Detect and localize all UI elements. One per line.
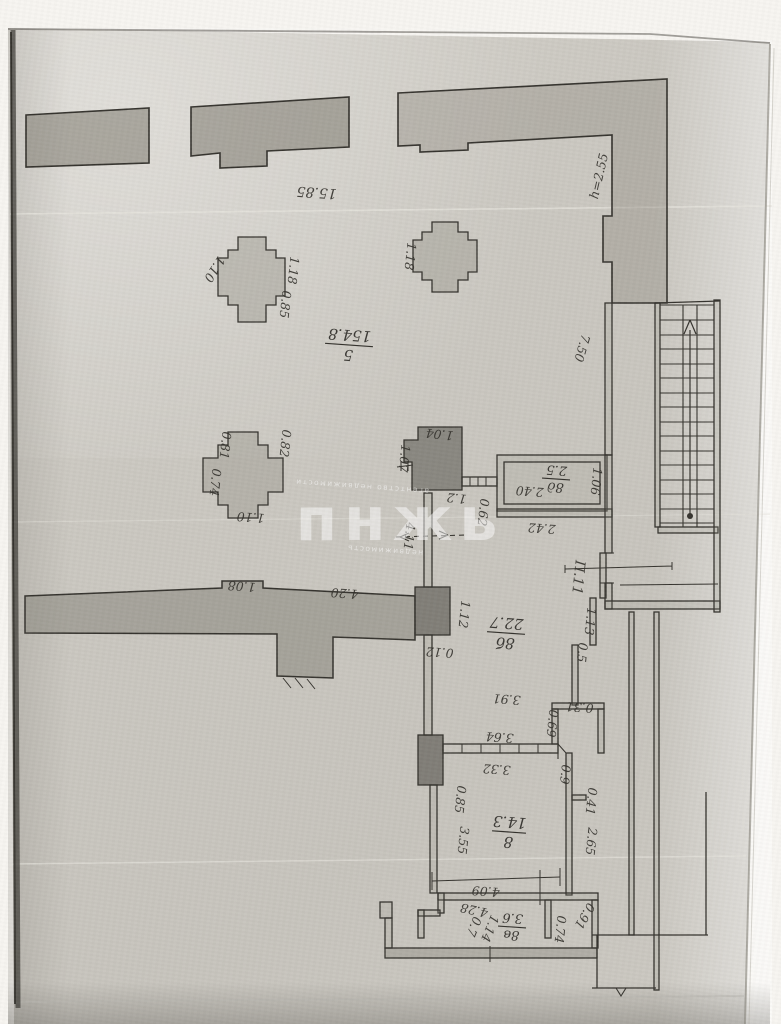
dim-label: 0.9 (557, 764, 574, 785)
dim-label: 0.41 (583, 787, 601, 816)
stair-landing-edge (658, 527, 718, 533)
watermark: агентство недвижимости пнжь недвижимость (294, 477, 504, 557)
dim-label: 4.20 (330, 585, 360, 602)
dim-label: 0.74 (552, 915, 570, 944)
dim-label: 2.65 (583, 826, 601, 856)
dim-label: 0.81 (217, 431, 235, 460)
dim-label: 0.74 (207, 468, 225, 497)
stair-right-wall (714, 300, 720, 612)
dim-label: 1.10 (236, 509, 265, 526)
dim-label: 1.12 (456, 600, 474, 629)
dim-label: 3.32 (482, 761, 511, 778)
wall-top-left (26, 108, 149, 167)
exterior-right-outer (629, 612, 634, 935)
room-area: 154.8 (328, 325, 372, 346)
exterior-right-inner (654, 612, 659, 990)
stair-left-wall (655, 303, 660, 527)
dim-label: 0.5 (574, 642, 591, 663)
dim-label: 4.09 (471, 883, 501, 900)
dim-label: 0.82 (277, 429, 295, 458)
room-number: 8в (503, 926, 520, 942)
dim-label: 1.04 (425, 426, 454, 444)
jog-041 (572, 795, 586, 800)
dim-label: 1.18 (402, 242, 420, 271)
wall-right-inner (605, 303, 612, 455)
dim-label: 0.85 (452, 785, 470, 814)
watermark-brand: пнжь (296, 485, 505, 555)
column-pier-5 (415, 587, 450, 635)
room-8v-left-wall-c (418, 910, 424, 938)
dim-label: 15.85 (296, 183, 337, 202)
wall-below-8d (497, 509, 612, 517)
lobby-bottom-wall (605, 601, 720, 609)
dim-label: 1.13 (582, 607, 600, 636)
dim-label: 3.55 (455, 826, 473, 855)
dim-label: 2.42 (527, 520, 557, 537)
bottom-band-left (385, 918, 392, 948)
bottom-band-wall (385, 948, 597, 958)
dim-label: 0.85 (277, 290, 295, 319)
room-number: 8д (547, 478, 565, 494)
room-area: 3.6 (502, 909, 524, 925)
scanned-floorplan-photo: 15.85 h=2.55 1.10 1.18 0.85 1.18 0.81 0.… (0, 0, 781, 1024)
room-number: 5 (343, 346, 354, 365)
dim-label: 2.40 (515, 483, 545, 500)
dim-label: 3.64 (485, 729, 514, 746)
corner-wall-v2 (598, 709, 604, 753)
room-8b-right-wall-1 (600, 553, 606, 598)
room-8-left-wall (430, 785, 437, 893)
dim-label: 1.18 (285, 256, 303, 285)
room-number: 8б (495, 633, 516, 652)
stair-direction-dot (687, 513, 693, 519)
room-8v-stub-wall (545, 900, 551, 938)
room-number: 8 (503, 833, 514, 852)
dim-label: 1.08 (227, 578, 256, 595)
dim-label: 0.31 (565, 699, 594, 716)
dim-label: 3.91 (492, 691, 521, 708)
floorplan-scan-svg: 15.85 h=2.55 1.10 1.18 0.85 1.18 0.81 0.… (0, 0, 781, 1024)
room-area: 22.7 (489, 613, 525, 633)
room-area: 14.3 (492, 812, 527, 832)
room-8v-top-wall (438, 893, 598, 900)
column-pier-6 (418, 735, 443, 785)
dim-label: 1.06 (588, 467, 606, 496)
dim-label: 0.69 (544, 709, 562, 738)
bottom-band-cap (380, 902, 392, 918)
dim-label: 0.12 (425, 644, 454, 661)
room-area: 2.5 (546, 461, 569, 477)
dim-label: 1.07 (396, 444, 414, 473)
